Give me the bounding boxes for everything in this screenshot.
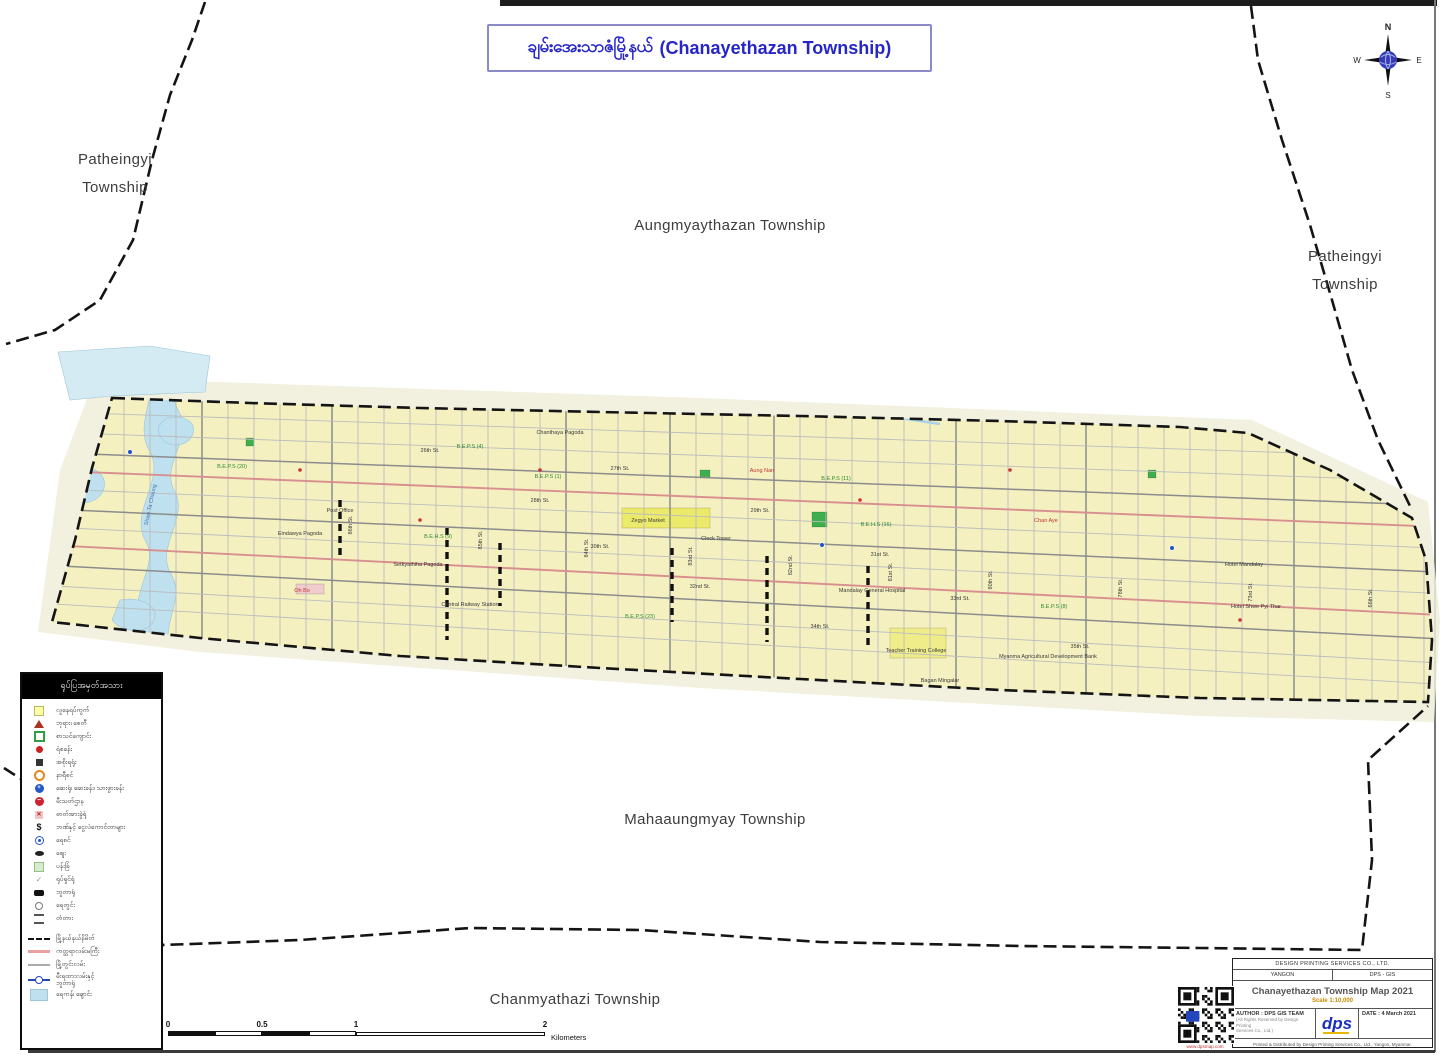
- compass-e: E: [1416, 56, 1421, 65]
- scale-unit: Kilometers: [551, 1033, 586, 1042]
- map-label: Bagan Mingalar: [921, 678, 960, 684]
- map-label: Mandalay General Hospital: [839, 588, 905, 594]
- legend-item: နာရီစင်: [28, 769, 155, 782]
- legend-label: ဘဏ်နှင့် ငွေလဲကောင်တာများ: [56, 824, 125, 831]
- map-label: 85th St.: [478, 530, 484, 549]
- map-label: Teacher Training College: [886, 648, 947, 654]
- line-dashed-icon: [28, 938, 50, 940]
- map-title-burmese: ချမ်းအေးသာဇံမြို့နယ်: [528, 36, 653, 61]
- legend-item: ✕ဓာတ်အားခွဲရုံ: [28, 808, 155, 821]
- circle-blue-cross-icon: +: [35, 784, 44, 793]
- title-block: DESIGN PRINTING SERVICES CO., LTD. YANGO…: [1232, 958, 1433, 1048]
- township-map: 26th St.27th St.28th St.29th St.30th St.…: [0, 0, 1440, 1062]
- neighbor-patheingyi-left: Patheingyi Township: [50, 146, 180, 202]
- map-label: 66th St.: [1368, 588, 1374, 607]
- map-label: Oh Bo: [294, 588, 310, 594]
- map-label: 34th St.: [811, 624, 830, 630]
- map-label: B.E.P.S (4): [457, 444, 484, 450]
- map-sheet: 26th St.27th St.28th St.29th St.30th St.…: [0, 0, 1440, 1062]
- glyph-dollar-icon: $: [36, 823, 41, 832]
- oval-black-icon: [35, 851, 44, 856]
- map-label: 31st St.: [871, 552, 890, 558]
- scale-tick-0: 0: [166, 1020, 170, 1029]
- scale-tick-05: 0.5: [256, 1020, 267, 1029]
- square-yellow-icon: [34, 706, 44, 716]
- circle-orange-icon: [34, 770, 45, 781]
- legend-item: −မီးသတ်ဌာန: [28, 795, 155, 808]
- map-label: B.E.P.S (11): [821, 476, 851, 482]
- circle-red-bar-icon: −: [35, 797, 44, 806]
- map-label: Chanthaya Pagoda: [536, 430, 584, 436]
- triangle-red-icon: [34, 720, 44, 728]
- compass-n: N: [1385, 22, 1392, 32]
- legend-label: ရုပ်ရှင်ရုံ: [56, 876, 75, 883]
- legend-label: မြို့နယ်နယ်နိမိတ်: [56, 935, 95, 942]
- compass-w: W: [1353, 56, 1361, 65]
- map-label: B.E.H.S (9): [424, 534, 452, 540]
- map-label: 81st St.: [888, 562, 894, 581]
- line-pink-icon: [28, 950, 50, 953]
- map-title-english: (Chanayethazan Township): [660, 38, 892, 59]
- legend-label: ရဲစခန်း: [56, 746, 72, 753]
- legend-label: ဓာတ်အားခွဲရုံ: [56, 811, 86, 818]
- map-label: Chan Aye: [1034, 518, 1058, 524]
- legend-item: +ဆေးရုံ၊ ဆေးခန်း၊ သားဖွားခန်း: [28, 782, 155, 795]
- scale-bar: 0 0.5 1 2 Kilometers: [165, 1020, 565, 1048]
- map-label: B.E.P.S (20): [217, 464, 247, 470]
- legend-item: လူနေရပ်ကွက်: [28, 704, 155, 717]
- legend-item: ဈေး: [28, 847, 155, 860]
- legend-item: တံတား: [28, 912, 155, 925]
- map-label: Aung Nan: [750, 468, 774, 474]
- map-label: Central Railway Station: [441, 602, 498, 608]
- neighbor-chanmyathazi: Chanmyathazi Township: [445, 986, 705, 1014]
- map-label: Clock Tower: [701, 536, 731, 542]
- bridge-icon: [34, 914, 44, 924]
- rights-note-2: Services Co., Ltd.): [1236, 1028, 1312, 1034]
- map-label: 26th St.: [421, 448, 440, 454]
- legend-item: အစိုးရရုံး: [28, 756, 155, 769]
- school-green-icon: [34, 731, 45, 742]
- legend-label: တံတား: [56, 915, 73, 922]
- map-label: Hotel Mandalay: [1225, 562, 1263, 568]
- map-label: 35th St.: [1071, 644, 1090, 650]
- neighbor-label: Patheingyi: [50, 146, 180, 174]
- neighbor-label: Patheingyi: [1284, 243, 1406, 271]
- neighbor-label: Mahaaungmyay Township: [575, 806, 855, 834]
- map-label: Post Office: [327, 508, 354, 514]
- map-label: Setkyathiha Pagoda: [393, 562, 443, 568]
- legend-label: ပန်းခြံ: [56, 863, 69, 870]
- dot-red-icon: [36, 746, 43, 753]
- map-label: 83rd St.: [688, 546, 694, 566]
- map-label: Zegyo Market: [631, 518, 665, 524]
- legend-item: မီးရထားလမ်းနှင့်ဘူတာရုံ: [28, 971, 155, 988]
- line-rail-icon: [28, 979, 50, 981]
- map-label: B.E.H.S (16): [861, 522, 892, 528]
- legend-label: ဆေးရုံ၊ ဆေးခန်း၊ သားဖွားခန်း: [56, 785, 124, 792]
- map-label: 33rd St.: [950, 596, 970, 602]
- company-name: DESIGN PRINTING SERVICES CO., LTD.: [1233, 959, 1432, 970]
- legend-item: မြို့တွင်းလမ်း: [28, 958, 155, 971]
- map-label: 80th St.: [988, 570, 994, 589]
- legend-item: ပန်းခြံ: [28, 860, 155, 873]
- date: DATE : 4 March 2021: [1362, 1011, 1429, 1017]
- publisher-footer: Printed & Distributed by Design Printing…: [1233, 1039, 1432, 1049]
- neighbor-label: Township: [1284, 271, 1406, 299]
- compass-s: S: [1385, 91, 1390, 100]
- patch-water-icon: [30, 989, 48, 1001]
- map-label: 30th St.: [591, 544, 610, 550]
- dps-logo: dps: [1322, 1015, 1352, 1032]
- map-label: 86th St.: [348, 515, 354, 534]
- qr-caption: www.dpsmap.com: [1175, 1044, 1235, 1049]
- map-label: 27th St.: [611, 466, 630, 472]
- map-label: 84th St.: [584, 538, 590, 557]
- legend-panel: ရုပ်ပြအမှတ်အသား လူနေရပ်ကွက်ဘုရား၊ စေတီစာ…: [20, 672, 163, 1050]
- map-label: 73rd St.: [1248, 582, 1254, 602]
- legend-label: မီးရထားလမ်းနှင့်ဘူတာရုံ: [56, 973, 94, 987]
- map-label: 82nd St.: [788, 554, 794, 575]
- qr-code-icon: [1177, 986, 1235, 1044]
- neighbor-patheingyi-right: Patheingyi Township: [1284, 243, 1406, 299]
- line-gray-icon: [28, 964, 50, 966]
- map-label: Myanma Agricultural Development Bank: [999, 654, 1097, 660]
- map-label: B.E.P.S (23): [625, 614, 655, 620]
- rect-black-icon: [34, 890, 44, 896]
- legend-label: ရေစင်: [56, 837, 71, 844]
- legend-label: ရေကန်၊ ချောင်း: [56, 991, 92, 998]
- map-label: 32nd St.: [690, 584, 711, 590]
- neighbor-label: Chanmyathazi Township: [445, 986, 705, 1014]
- legend-item: မြို့နယ်နယ်နိမိတ်: [28, 932, 155, 945]
- map-label: B.E.P.S (1): [535, 474, 562, 480]
- map-label: Eindawya Pagoda: [278, 531, 323, 537]
- rights-note-1: (All Rights Reserved by Design Printing: [1236, 1017, 1312, 1028]
- legend-item: ရေကန်၊ ချောင်း: [28, 988, 155, 1001]
- legend-item: ရေစင်: [28, 834, 155, 847]
- legend-label: စာသင်ကျောင်း: [56, 733, 91, 740]
- legend-item: ကတ္တရာလမ်းမကြီး: [28, 945, 155, 958]
- legend-label: ဘုရား၊ စေတီ: [56, 720, 87, 727]
- legend-item: ရေတွင်း: [28, 899, 155, 912]
- map-label: 28th St.: [531, 498, 550, 504]
- scale-tick-1: 1: [354, 1020, 358, 1029]
- legend-label: လူနေရပ်ကွက်: [56, 707, 89, 714]
- map-label: Hotel Shwe Pyi Thar: [1231, 604, 1281, 610]
- neighbor-label: Township: [50, 174, 180, 202]
- neighbor-aungmyaythazan: Aungmyaythazan Township: [590, 212, 870, 240]
- legend-item: ✓ရုပ်ရှင်ရုံ: [28, 873, 155, 886]
- neighbor-mahaaungmyay: Mahaaungmyay Township: [575, 806, 855, 834]
- square-dark-icon: [36, 759, 43, 766]
- square-green-pale-icon: [34, 862, 44, 872]
- legend-label: ကတ္တရာလမ်းမကြီး: [56, 948, 99, 955]
- scale-tick-2: 2: [543, 1020, 547, 1029]
- company-dept: DPS - GIS: [1332, 970, 1432, 980]
- legend-item: $ဘဏ်နှင့် ငွေလဲကောင်တာများ: [28, 821, 155, 834]
- legend-label: မြို့တွင်းလမ်း: [56, 961, 85, 968]
- legend-label: ဈေး: [56, 850, 66, 857]
- map-label: 29th St.: [751, 508, 770, 514]
- legend-label: ရေတွင်း: [56, 902, 75, 909]
- map-scale: Scale 1:10,000: [1312, 998, 1353, 1004]
- square-pink-x-icon: ✕: [35, 811, 43, 819]
- map-label: 78th St.: [1118, 578, 1124, 597]
- map-sheet-title: Chanayethazan Township Map 2021: [1252, 986, 1413, 997]
- legend-header: ရုပ်ပြအမှတ်အသား: [22, 674, 161, 699]
- legend-label: အစိုးရရုံး: [56, 759, 76, 766]
- neighbor-label: Aungmyaythazan Township: [590, 212, 870, 240]
- map-title-box: ချမ်းအေးသာဇံမြို့နယ် (Chanayethazan Town…: [487, 24, 932, 72]
- legend-item: ဘုရား၊ စေတီ: [28, 717, 155, 730]
- legend-item: ရဲစခန်း: [28, 743, 155, 756]
- legend-label: ဘူတာရုံ: [56, 889, 75, 896]
- circle-blue-dot-icon: [35, 836, 44, 845]
- legend-item: စာသင်ကျောင်း: [28, 730, 155, 743]
- legend-label: မီးသတ်ဌာန: [56, 798, 84, 805]
- legend-item: ဘူတာရုံ: [28, 886, 155, 899]
- compass-rose-icon: N S W E: [1350, 16, 1426, 102]
- map-label: B.E.P.S (8): [1041, 604, 1068, 610]
- circle-gray-icon: [35, 902, 43, 910]
- company-city: YANGON: [1233, 970, 1332, 980]
- tick-gray-icon: ✓: [36, 876, 43, 884]
- legend-label: နာရီစင်: [56, 772, 73, 779]
